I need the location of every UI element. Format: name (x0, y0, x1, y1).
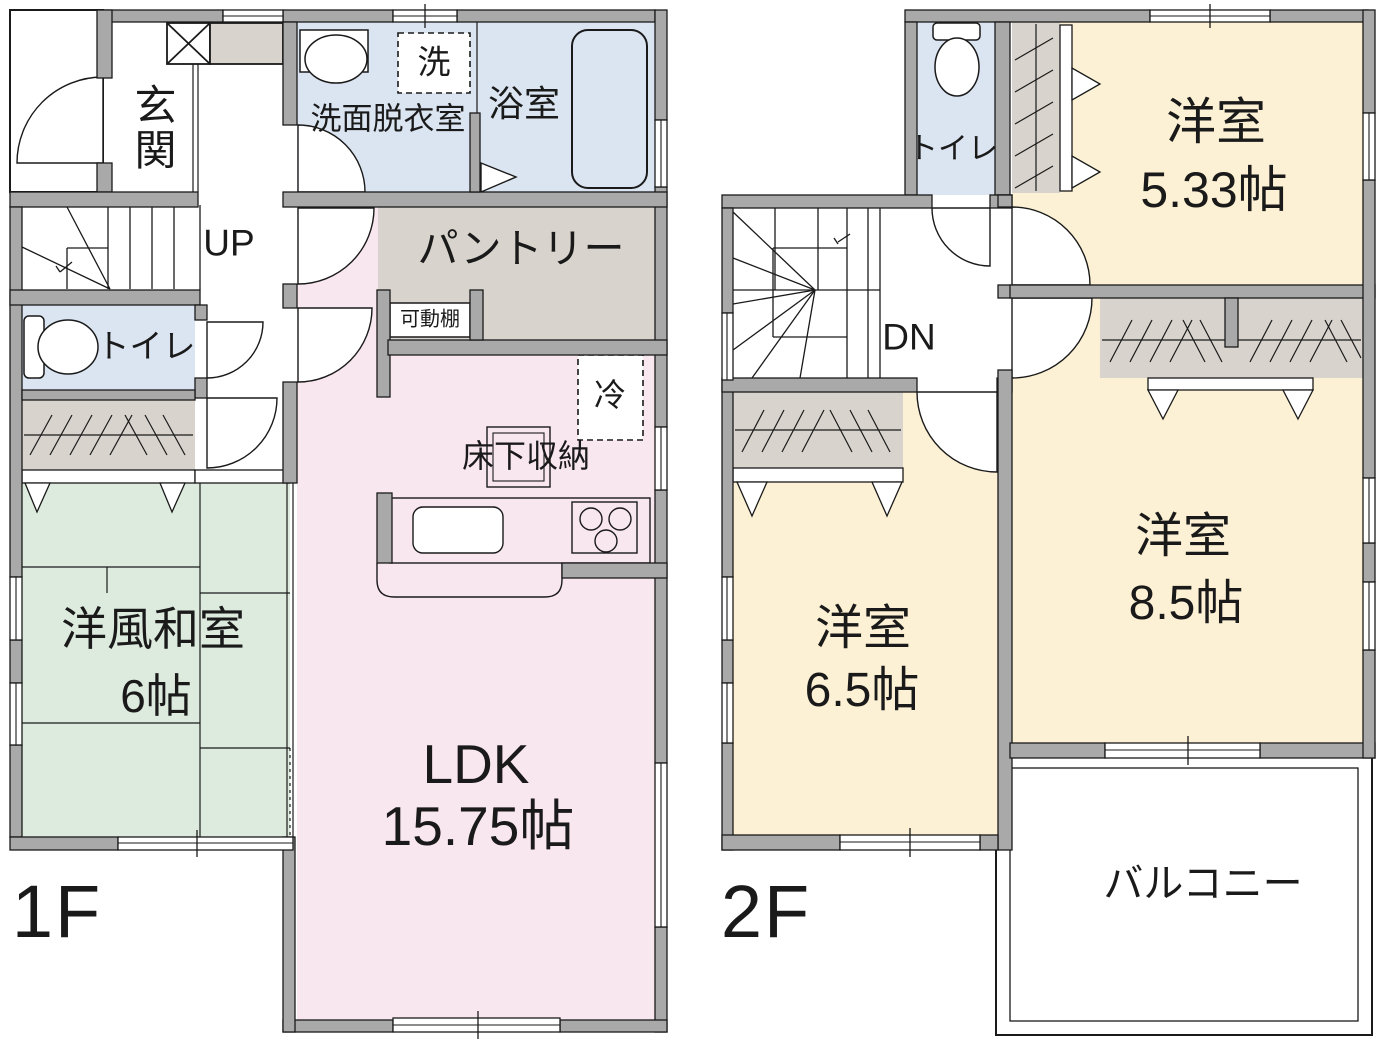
floor-marker-2f: 2F (721, 873, 811, 951)
room-size-ldk: 15.75帖 (382, 798, 575, 856)
toilet-2f-icon (933, 23, 980, 96)
washing-machine-label: 洗 (418, 46, 451, 81)
shoe-cabinet-icon (167, 23, 283, 64)
movable-shelf-label: 可動棚 (400, 310, 460, 331)
room-size-japanese-room: 6帖 (120, 672, 192, 720)
room-size-western-85: 8.5帖 (1129, 579, 1244, 629)
room-size-western-65: 6.5帖 (805, 666, 920, 716)
sink-icon (413, 507, 503, 553)
room-label-washroom: 洗面脱衣室 (311, 104, 466, 137)
room-label-bathroom: 浴室 (488, 85, 560, 123)
room-label-toilet-2f: トイレ (908, 133, 998, 165)
stairs-up-icon (22, 205, 200, 290)
toilet-1f-icon (24, 316, 98, 378)
room-label-western-65: 洋室 (815, 604, 911, 654)
stairs-up-label: UP (203, 225, 254, 264)
room-label-pantry: パントリー (417, 227, 624, 270)
room-label-japanese-room: 洋風和室 (61, 605, 245, 653)
japanese-room-sliding-door (195, 470, 290, 483)
room-size-western-533: 5.33帖 (1140, 164, 1287, 217)
room-label-toilet-1f: トイレ (97, 330, 196, 365)
refrigerator-label: 冷 (594, 379, 626, 413)
toilet-2f-door-swing (932, 208, 990, 266)
room-fill-japanese-room (22, 483, 290, 837)
toilet-1f-door-swing (207, 322, 263, 378)
stairs-down-icon (733, 208, 880, 378)
underfloor-storage-label: 床下収納 (462, 440, 590, 474)
room-label-ldk: LDK (423, 736, 530, 794)
closet-1f-door-swing (207, 398, 277, 468)
floor-plan: 玄関 洗面脱衣室 洗 浴室 UP トイレ パントリー 可動棚 冷 床下収納 洋風… (0, 0, 1378, 1041)
room-label-entrance: 玄関 (130, 83, 174, 173)
stairs-down-label: DN (882, 319, 935, 358)
floor-marker-1f: 1F (12, 873, 102, 951)
room-label-western-533: 洋室 (1166, 96, 1266, 149)
room-label-western-85: 洋室 (1135, 512, 1231, 562)
room-label-balcony: バルコニー (1103, 863, 1302, 905)
